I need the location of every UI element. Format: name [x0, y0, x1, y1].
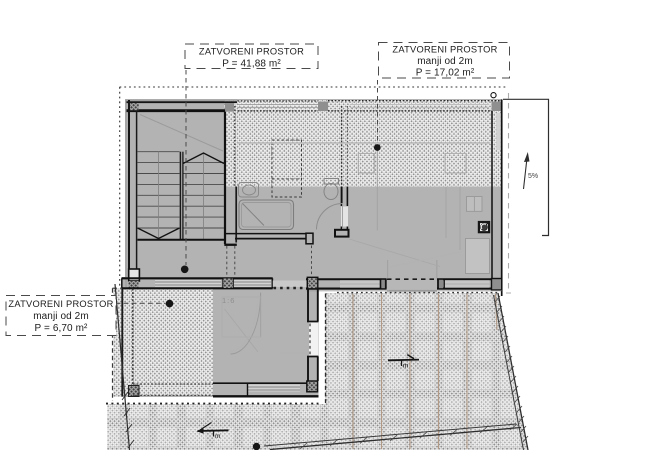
svg-text:m: m: [215, 433, 220, 440]
svg-text:m: m: [403, 363, 408, 370]
svg-text:P = 6,70 m²: P = 6,70 m²: [35, 323, 88, 334]
svg-text:5%: 5%: [528, 173, 538, 180]
svg-text:P = 41,88 m²: P = 41,88 m²: [222, 59, 281, 70]
svg-text:ZATVORENI PROSTOR: ZATVORENI PROSTOR: [392, 45, 497, 55]
svg-text:ZATVORENI PROSTOR: ZATVORENI PROSTOR: [199, 47, 304, 57]
svg-text:1:6: 1:6: [222, 296, 235, 305]
svg-text:manji od 2m: manji od 2m: [417, 56, 473, 67]
svg-text:manji od 2m: manji od 2m: [33, 311, 89, 322]
svg-text:P = 17,02 m²: P = 17,02 m²: [416, 68, 475, 79]
svg-text:ZATVORENI PROSTOR: ZATVORENI PROSTOR: [8, 299, 113, 309]
